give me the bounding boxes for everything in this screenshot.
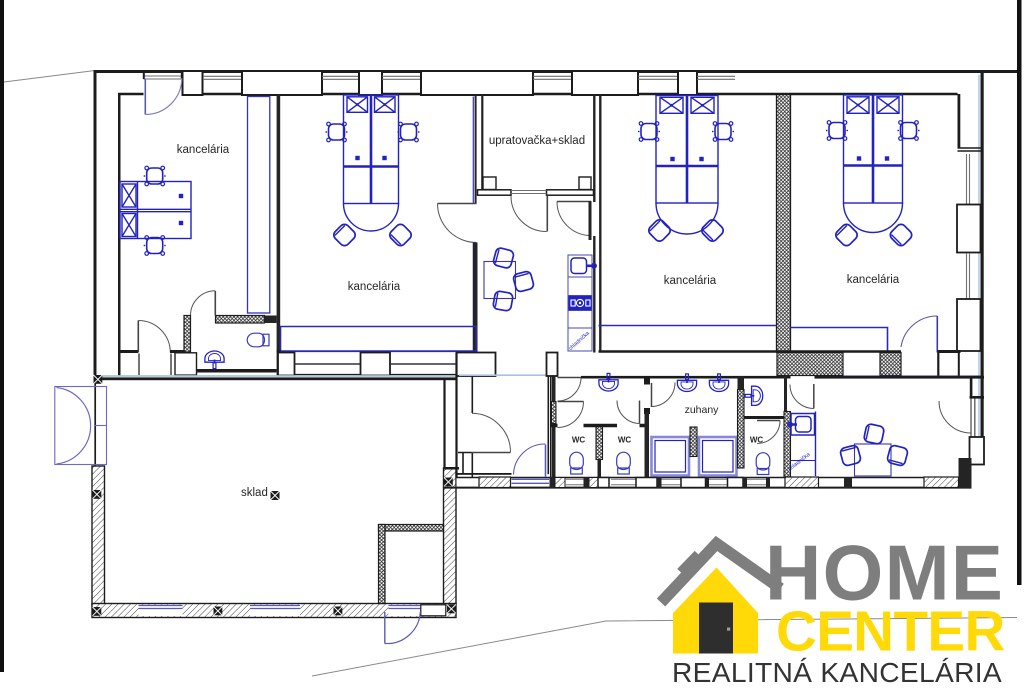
- svg-text:upratovačka+sklad: upratovačka+sklad: [489, 135, 585, 147]
- svg-text:CENTER: CENTER: [776, 600, 1005, 663]
- svg-text:kancelária: kancelária: [348, 281, 401, 293]
- svg-text:REALITNÁ KANCELÁRIA: REALITNÁ KANCELÁRIA: [672, 656, 1002, 688]
- svg-text:sklad: sklad: [241, 487, 268, 499]
- svg-text:WC: WC: [618, 436, 632, 445]
- svg-text:kancelária: kancelária: [664, 275, 717, 287]
- svg-text:WC: WC: [750, 436, 764, 445]
- svg-text:kancelária: kancelária: [177, 144, 230, 156]
- svg-text:WC: WC: [572, 436, 586, 445]
- svg-text:kancelária: kancelária: [847, 274, 900, 286]
- svg-text:zuhany: zuhany: [685, 404, 720, 416]
